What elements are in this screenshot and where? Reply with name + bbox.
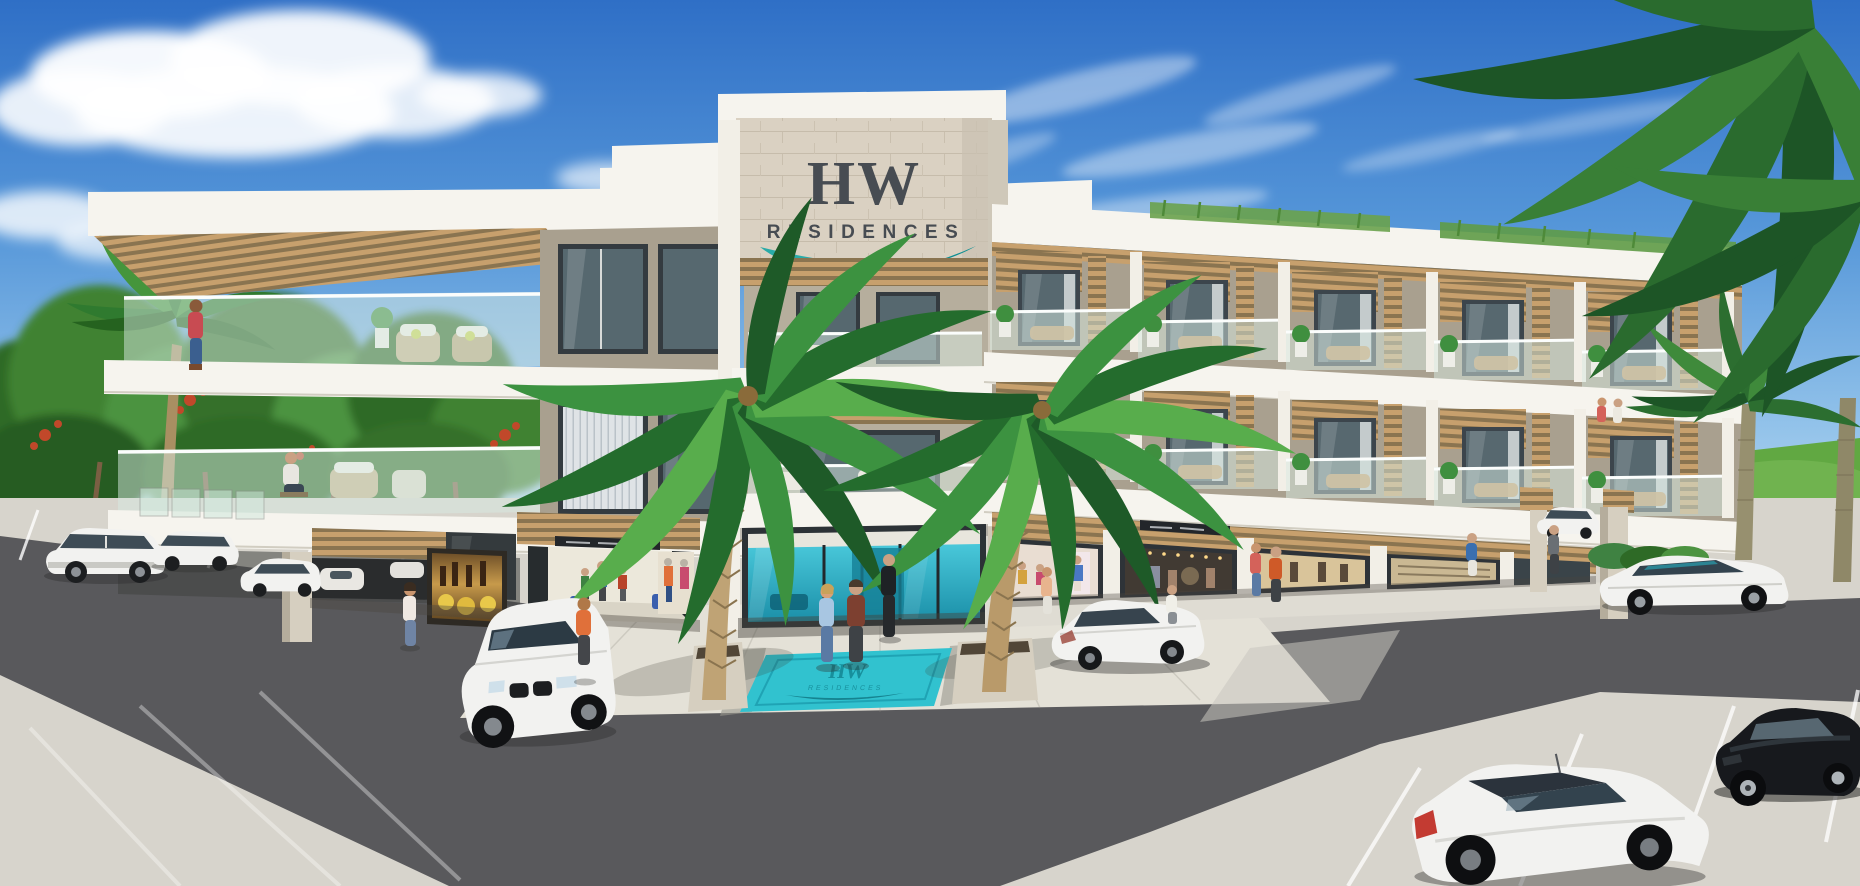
rendering-stage: HW RESIDENCES	[0, 0, 1860, 886]
left-windows-floor3	[558, 244, 734, 354]
garage-car-2	[390, 562, 424, 578]
logo-hw: HW	[807, 150, 921, 218]
terrace3-glass-rail	[124, 292, 540, 372]
garage-slat-screen	[312, 528, 446, 560]
rendering-canvas: HW RESIDENCES	[0, 0, 1860, 886]
mat-residences: RESIDENCES	[807, 685, 884, 692]
